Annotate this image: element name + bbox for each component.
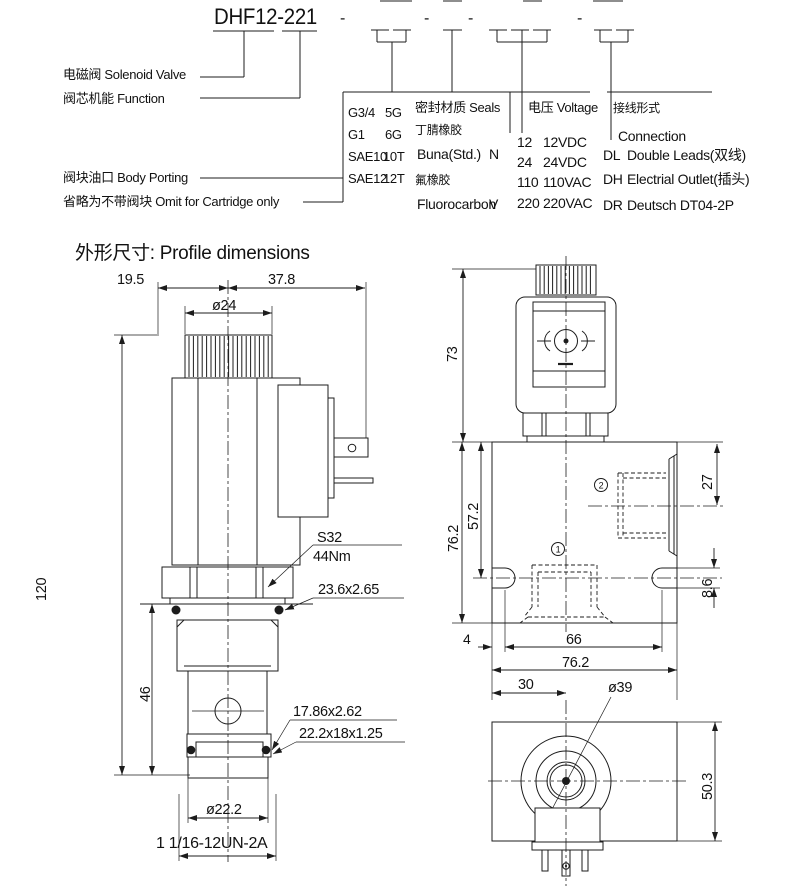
dim-dia-24: ø24 — [212, 298, 236, 314]
legend-omit-cartridge: 省略为不带阀块 Omit for Cartridge only — [63, 194, 280, 209]
code-dash-3: - — [468, 10, 473, 27]
port-2-label: 2 — [599, 481, 604, 491]
connection-title: 接线形式 — [613, 100, 660, 115]
seal-cn: 氟橡胶 — [415, 172, 450, 187]
dim-46: 46 — [138, 686, 154, 702]
voltage-value: 220VAC — [543, 195, 592, 211]
porting-row-value: 5G — [385, 105, 402, 120]
legend-solenoid-valve: 电磁阀 Solenoid Valve — [63, 67, 186, 82]
dim-27: 27 — [700, 474, 716, 490]
legend-function: 阀芯机能 Function — [63, 91, 165, 106]
voltage-options: 电压 Voltage 12 12VDC 24 24VDC 110 110VAC … — [517, 100, 598, 211]
code-dash-2: - — [424, 10, 429, 27]
seal-code: V — [489, 196, 499, 212]
connection-desc: Double Leads(双线) — [627, 147, 746, 163]
voltage-value: 12VDC — [543, 134, 587, 150]
voltage-value: 110VAC — [543, 174, 591, 190]
porting-row-value: 12T — [383, 171, 405, 186]
valve-datasheet-drawing: DHF12-221 - - - - 电磁阀 Solenoid Valve 阀芯机… — [0, 0, 790, 890]
porting-row-code: G3/4 — [348, 105, 375, 120]
porting-row-value: 6G — [385, 127, 402, 142]
seal-cn: 丁腈橡胶 — [415, 122, 462, 137]
voltage-value: 24VDC — [543, 154, 587, 170]
connection-code: DR — [603, 197, 623, 213]
seal-en: Buna(Std.) — [417, 146, 481, 162]
seal-code: N — [489, 146, 499, 162]
dim-76-2-height: 76.2 — [446, 525, 462, 552]
datasheet-page: DHF12-221 - - - - 电磁阀 Solenoid Valve 阀芯机… — [0, 0, 790, 890]
dim-19-5: 19.5 — [117, 272, 144, 288]
dim-4: 4 — [463, 631, 471, 647]
legend-body-porting: 阀块油口 Body Porting — [63, 170, 188, 185]
port-1-label: 1 — [556, 545, 561, 555]
seals-options: 密封材质 Seals 丁腈橡胶 Buna(Std.) N 氟橡胶 Fluoroc… — [415, 100, 501, 212]
side-view-linework — [114, 280, 405, 862]
dim-dia-22-2: ø22.2 — [206, 802, 242, 818]
dim-44nm: 44Nm — [313, 549, 351, 565]
dim-50-3: 50.3 — [700, 773, 716, 800]
front-view-linework — [452, 256, 723, 886]
dim-thread: 1 1/16-12UN-2A — [156, 835, 268, 852]
connection-desc: Electrial Outlet(插头) — [627, 171, 749, 187]
voltage-code: 110 — [517, 174, 539, 190]
connection-subtitle: Connection — [618, 128, 686, 144]
section-title: 外形尺寸: Profile dimensions — [75, 242, 310, 264]
voltage-code: 220 — [517, 195, 540, 211]
dim-37-8: 37.8 — [268, 272, 295, 288]
dim-dia-39: ø39 — [608, 680, 632, 696]
dim-8-6: 8.6 — [700, 579, 716, 598]
dim-120: 120 — [34, 577, 50, 601]
voltage-code: 12 — [517, 134, 532, 150]
connection-desc: Deutsch DT04-2P — [627, 197, 734, 213]
code-dash-4: - — [577, 10, 582, 27]
porting-row-code: SAE12 — [348, 171, 387, 186]
seal-en: Fluorocarbon — [417, 196, 496, 212]
porting-row-code: SAE10 — [348, 149, 387, 164]
dim-30: 30 — [518, 677, 534, 693]
code-dash-1: - — [340, 10, 345, 27]
dim-76-2-width: 76.2 — [562, 655, 589, 671]
porting-options: G3/4 5G G1 6G SAE10 10T SAE12 12T — [348, 105, 405, 186]
dim-17-86x2-62: 17.86x2.62 — [293, 704, 362, 720]
dim-57-2: 57.2 — [466, 503, 482, 530]
porting-row-value: 10T — [383, 149, 405, 164]
voltage-code: 24 — [517, 154, 532, 170]
model-code: DHF12-221 — [214, 4, 317, 29]
dim-22-2x18x1-25: 22.2x18x1.25 — [299, 726, 383, 742]
seals-title: 密封材质 Seals — [415, 100, 501, 115]
connection-code: DH — [603, 171, 623, 187]
dim-s32: S32 — [317, 530, 342, 546]
dim-66: 66 — [566, 632, 582, 648]
dim-23-6x2-65: 23.6x2.65 — [318, 582, 379, 598]
porting-row-code: G1 — [348, 127, 365, 142]
connection-code: DL — [603, 147, 621, 163]
connection-options: 接线形式 Connection DL Double Leads(双线) DH E… — [603, 100, 749, 213]
dim-73: 73 — [445, 346, 461, 362]
voltage-title: 电压 Voltage — [528, 100, 598, 115]
